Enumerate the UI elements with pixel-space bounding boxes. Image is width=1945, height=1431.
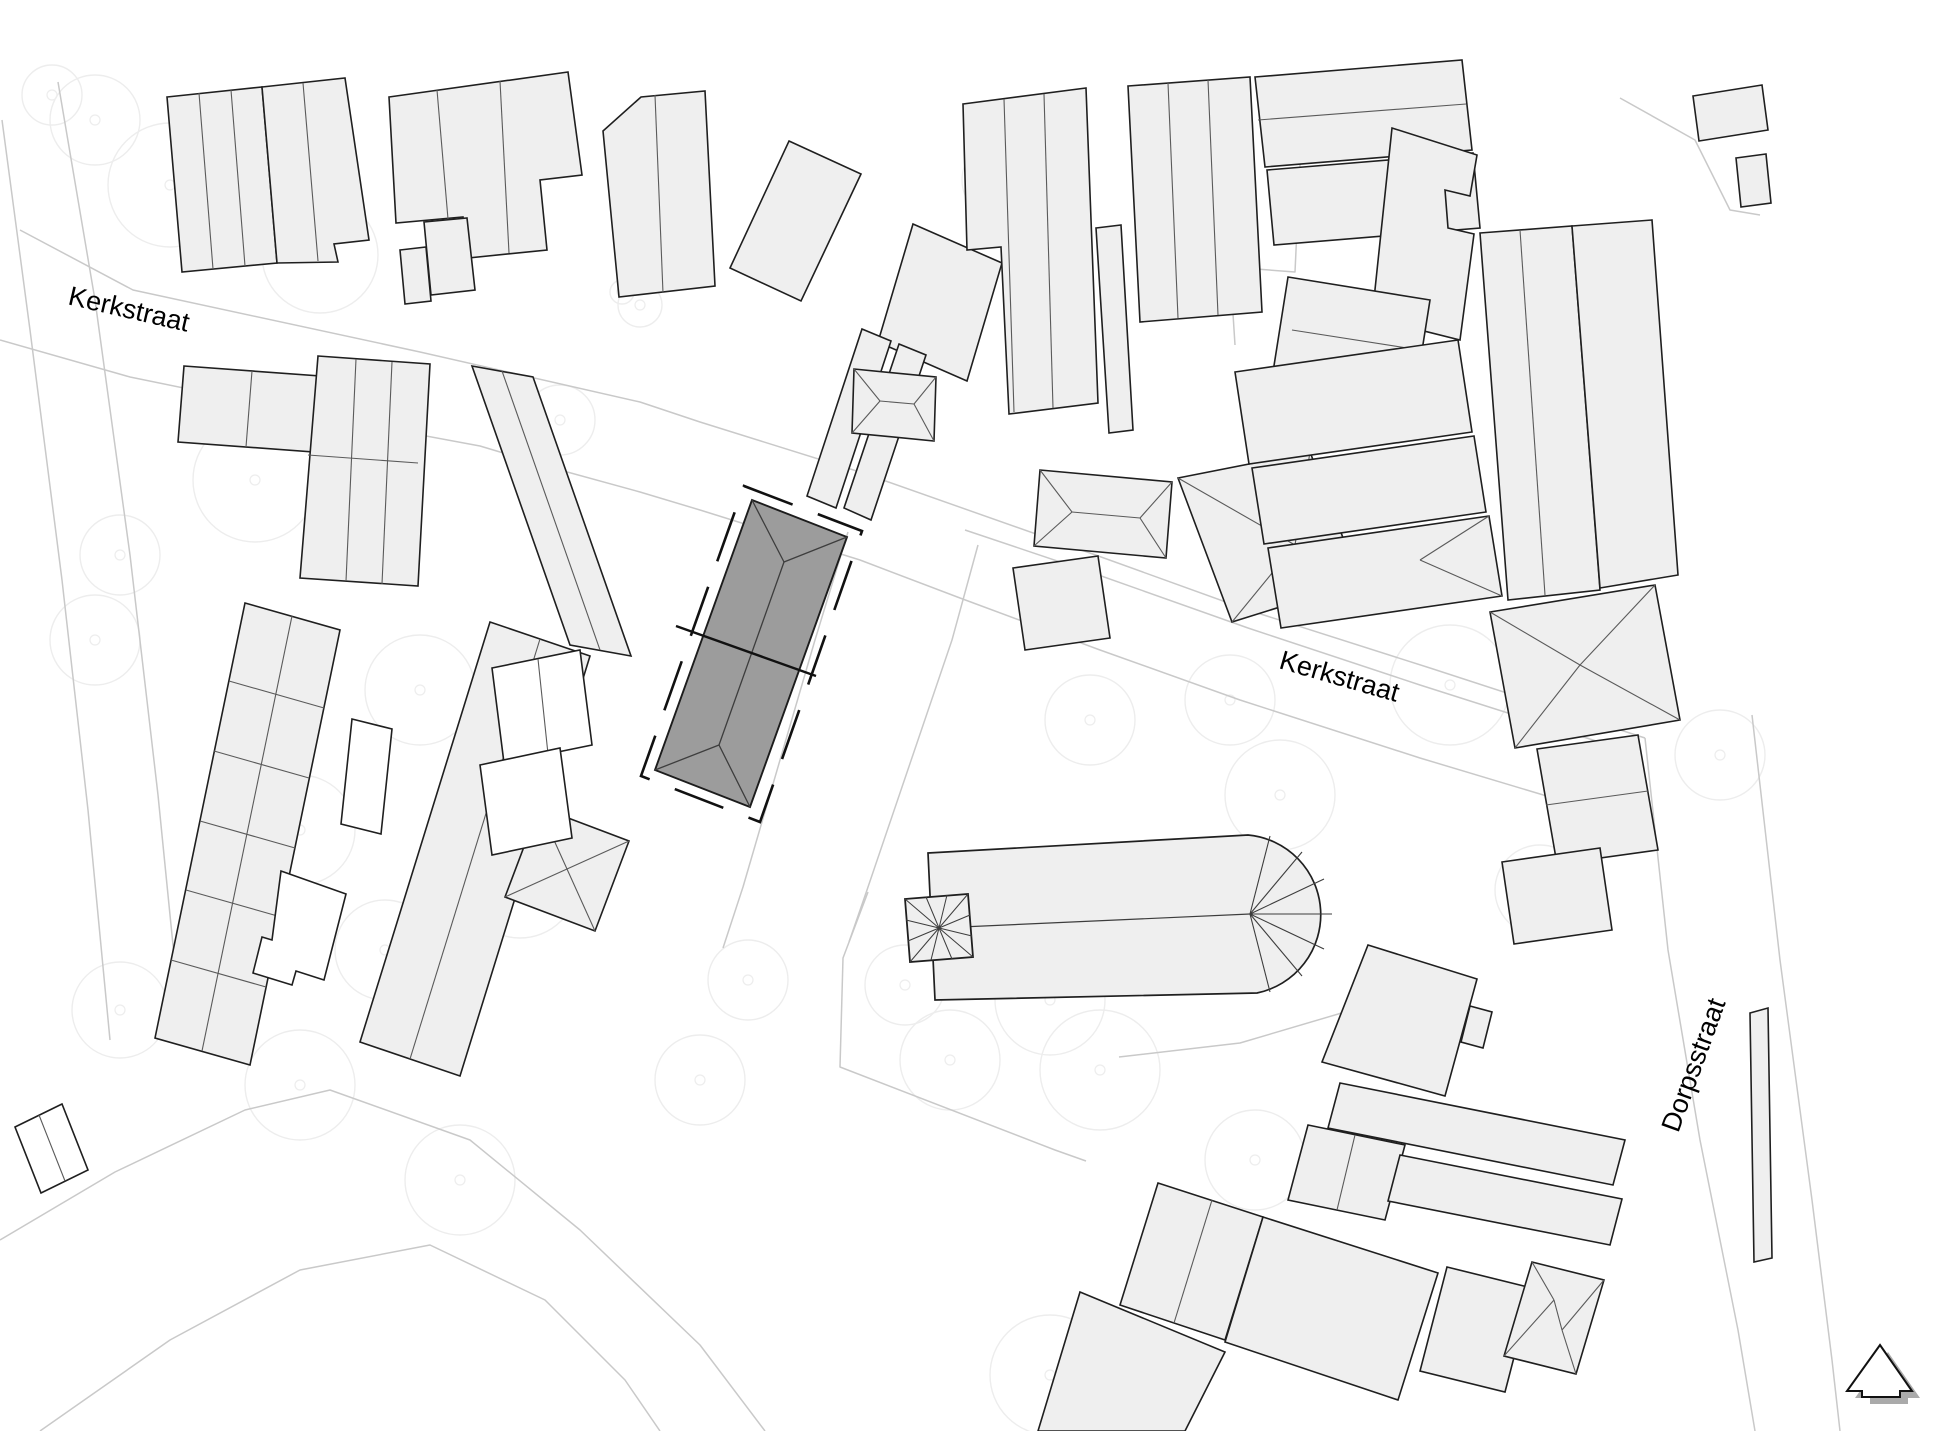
church-nave [928,835,1321,1000]
building-footprint [424,218,475,295]
building-footprint [1537,735,1658,864]
building-footprint [1034,470,1172,558]
outbuilding-footprint [492,650,592,763]
building-footprint [1502,848,1612,944]
building-footprint [300,356,430,586]
church-building [905,835,1332,1000]
building-footprint [1693,85,1768,141]
building-footprint [167,87,277,272]
building-footprint [1750,1008,1772,1262]
building-footprint [852,369,936,441]
site-plan-canvas: KerkstraatKerkstraatDorpsstraat [0,0,1945,1431]
building-footprint [1013,556,1110,650]
outbuilding-footprint [480,748,572,855]
building-footprint [1490,585,1680,748]
building-footprint [1736,154,1771,207]
building-footprint [400,247,431,304]
building-footprint [1128,77,1262,322]
